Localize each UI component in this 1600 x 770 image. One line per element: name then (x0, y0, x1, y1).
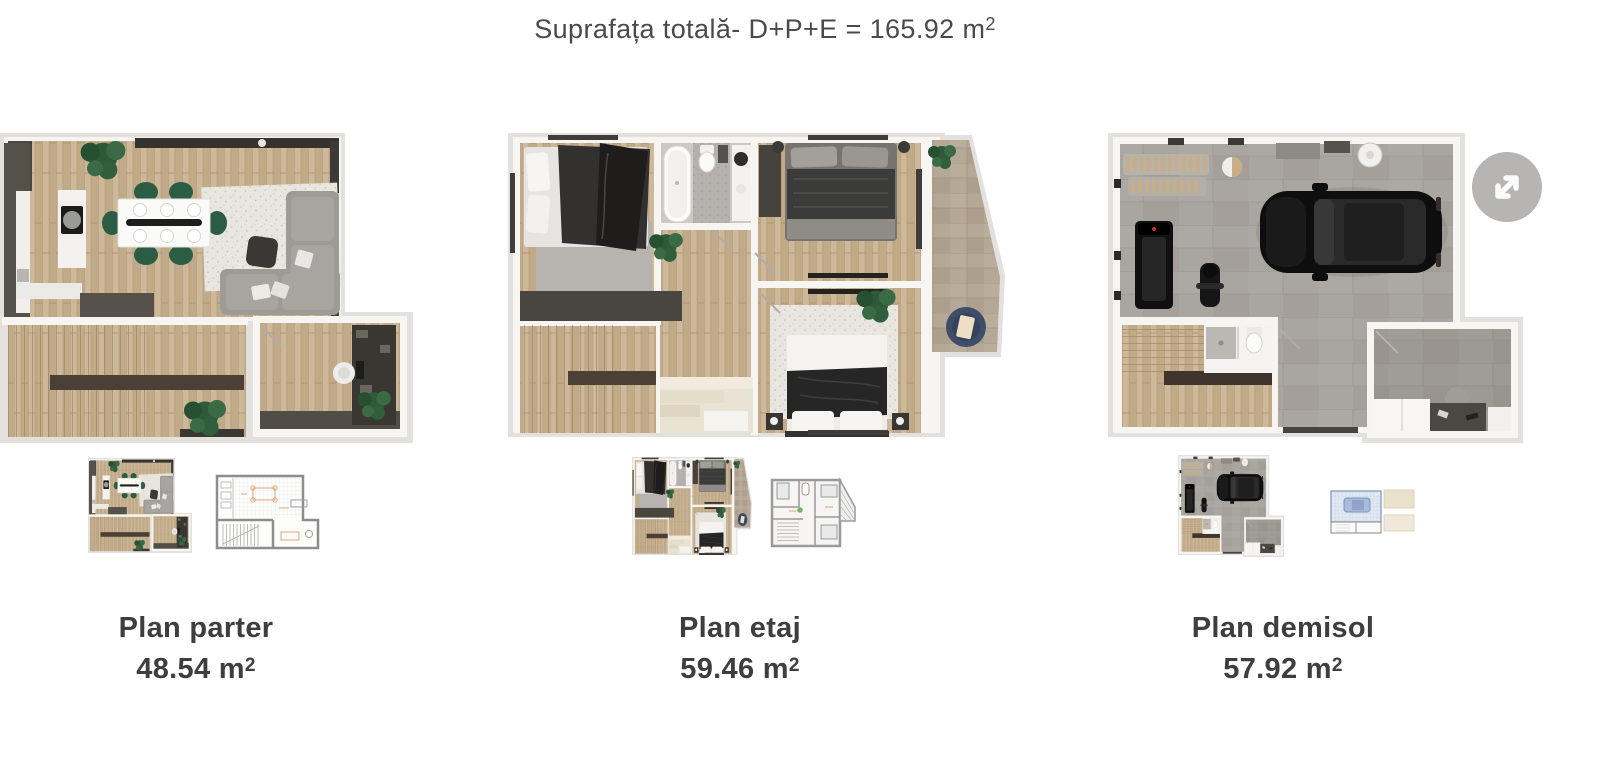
plan-etaj-thumb-2d[interactable] (769, 477, 857, 549)
plan-etaj-name: Plan etaj (565, 610, 915, 647)
plan-demisol-area: 57.92 m2 (1108, 647, 1458, 688)
plan-parter-thumb-3d[interactable] (88, 458, 192, 553)
page-title-text: Suprafața totală- D+P+E = 165.92 m (534, 14, 985, 44)
plan-demisol-image[interactable] (1108, 133, 1523, 443)
plan-etaj-area: 59.46 m2 (565, 647, 915, 688)
page-title-sup: 2 (985, 14, 995, 34)
floor-plans-section: Suprafața totală- D+P+E = 165.92 m2 (0, 0, 1600, 770)
plan-demisol-thumb-3d[interactable] (1178, 455, 1284, 557)
plan-parter-name: Plan parter (21, 610, 371, 647)
plan-demisol-thumb-2d[interactable] (1328, 489, 1415, 535)
plan-etaj-label: Plan etaj 59.46 m2 (565, 610, 915, 688)
plan-etaj-image[interactable] (508, 133, 1005, 437)
plan-demisol-name: Plan demisol (1108, 610, 1458, 647)
expand-button[interactable] (1472, 152, 1542, 222)
plan-parter-image[interactable] (0, 133, 413, 443)
plan-parter-label: Plan parter 48.54 m2 (21, 610, 371, 688)
plan-parter-thumb-2d[interactable] (215, 474, 320, 550)
plan-parter-area: 48.54 m2 (21, 647, 371, 688)
plan-etaj-thumb-3d[interactable] (632, 457, 752, 555)
expand-diagonal-arrows-icon (1472, 152, 1542, 222)
plan-demisol-label: Plan demisol 57.92 m2 (1108, 610, 1458, 688)
page-title: Suprafața totală- D+P+E = 165.92 m2 (465, 14, 1065, 45)
